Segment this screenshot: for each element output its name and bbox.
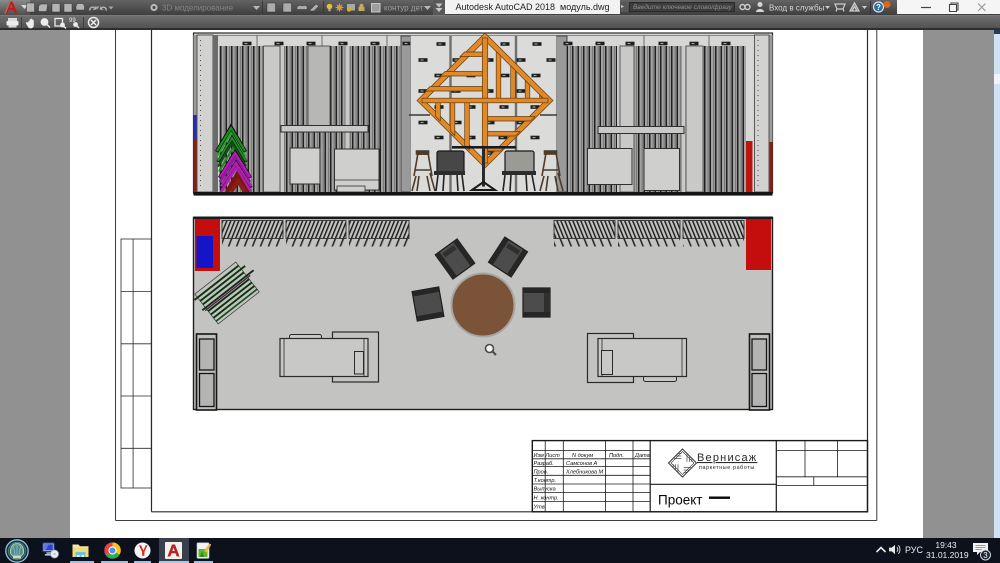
svg-text:Вход в службы: Вход в службы (769, 4, 825, 13)
svg-text:Подп.: Подп. (609, 453, 624, 459)
svg-text:N докум: N докум (572, 453, 593, 459)
svg-text:3: 3 (983, 551, 988, 560)
svg-text:Т.контр.: Т.контр. (534, 478, 557, 484)
svg-text:Разраб.: Разраб. (534, 461, 554, 467)
svg-text:Пров.: Пров. (534, 470, 549, 476)
svg-text:Самсонов А: Самсонов А (566, 461, 598, 467)
svg-text:контур дет: контур дет (384, 4, 424, 13)
svg-text:Дата: Дата (634, 453, 650, 459)
svg-text:Хлебникова М: Хлебникова М (565, 470, 604, 476)
svg-text:Проект: Проект (658, 493, 702, 508)
svg-text:паркетные работы: паркетные работы (699, 465, 755, 471)
svg-text:?: ? (876, 3, 881, 12)
svg-text:Выпуска: Выпуска (534, 487, 556, 493)
svg-text:Утв.: Утв. (533, 505, 547, 511)
svg-text:Н. контр.: Н. контр. (534, 496, 559, 502)
svg-text:Изм Лист: Изм Лист (534, 453, 561, 459)
svg-text:3D моделирование: 3D моделирование (162, 4, 234, 13)
svg-text:Вернисаж: Вернисаж (697, 452, 757, 464)
